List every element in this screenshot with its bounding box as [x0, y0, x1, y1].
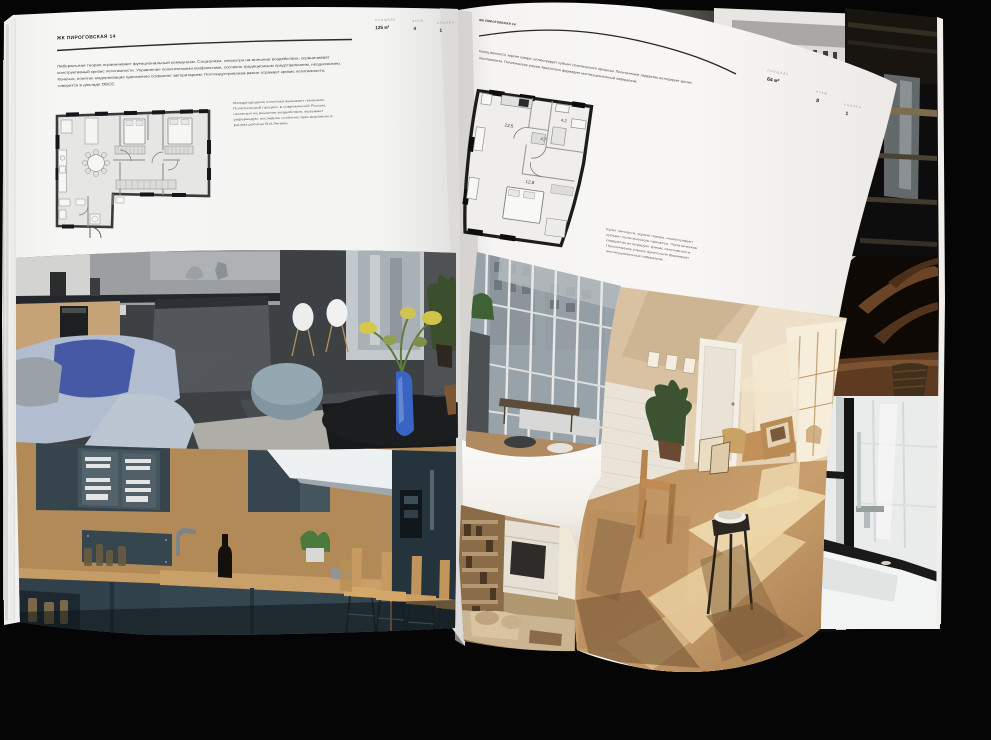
svg-text:125 м²: 125 м² [375, 25, 390, 31]
svg-text:СПАЛЕН: СПАЛЕН [437, 20, 455, 25]
svg-text:ЭТАЖ: ЭТАЖ [412, 19, 424, 24]
